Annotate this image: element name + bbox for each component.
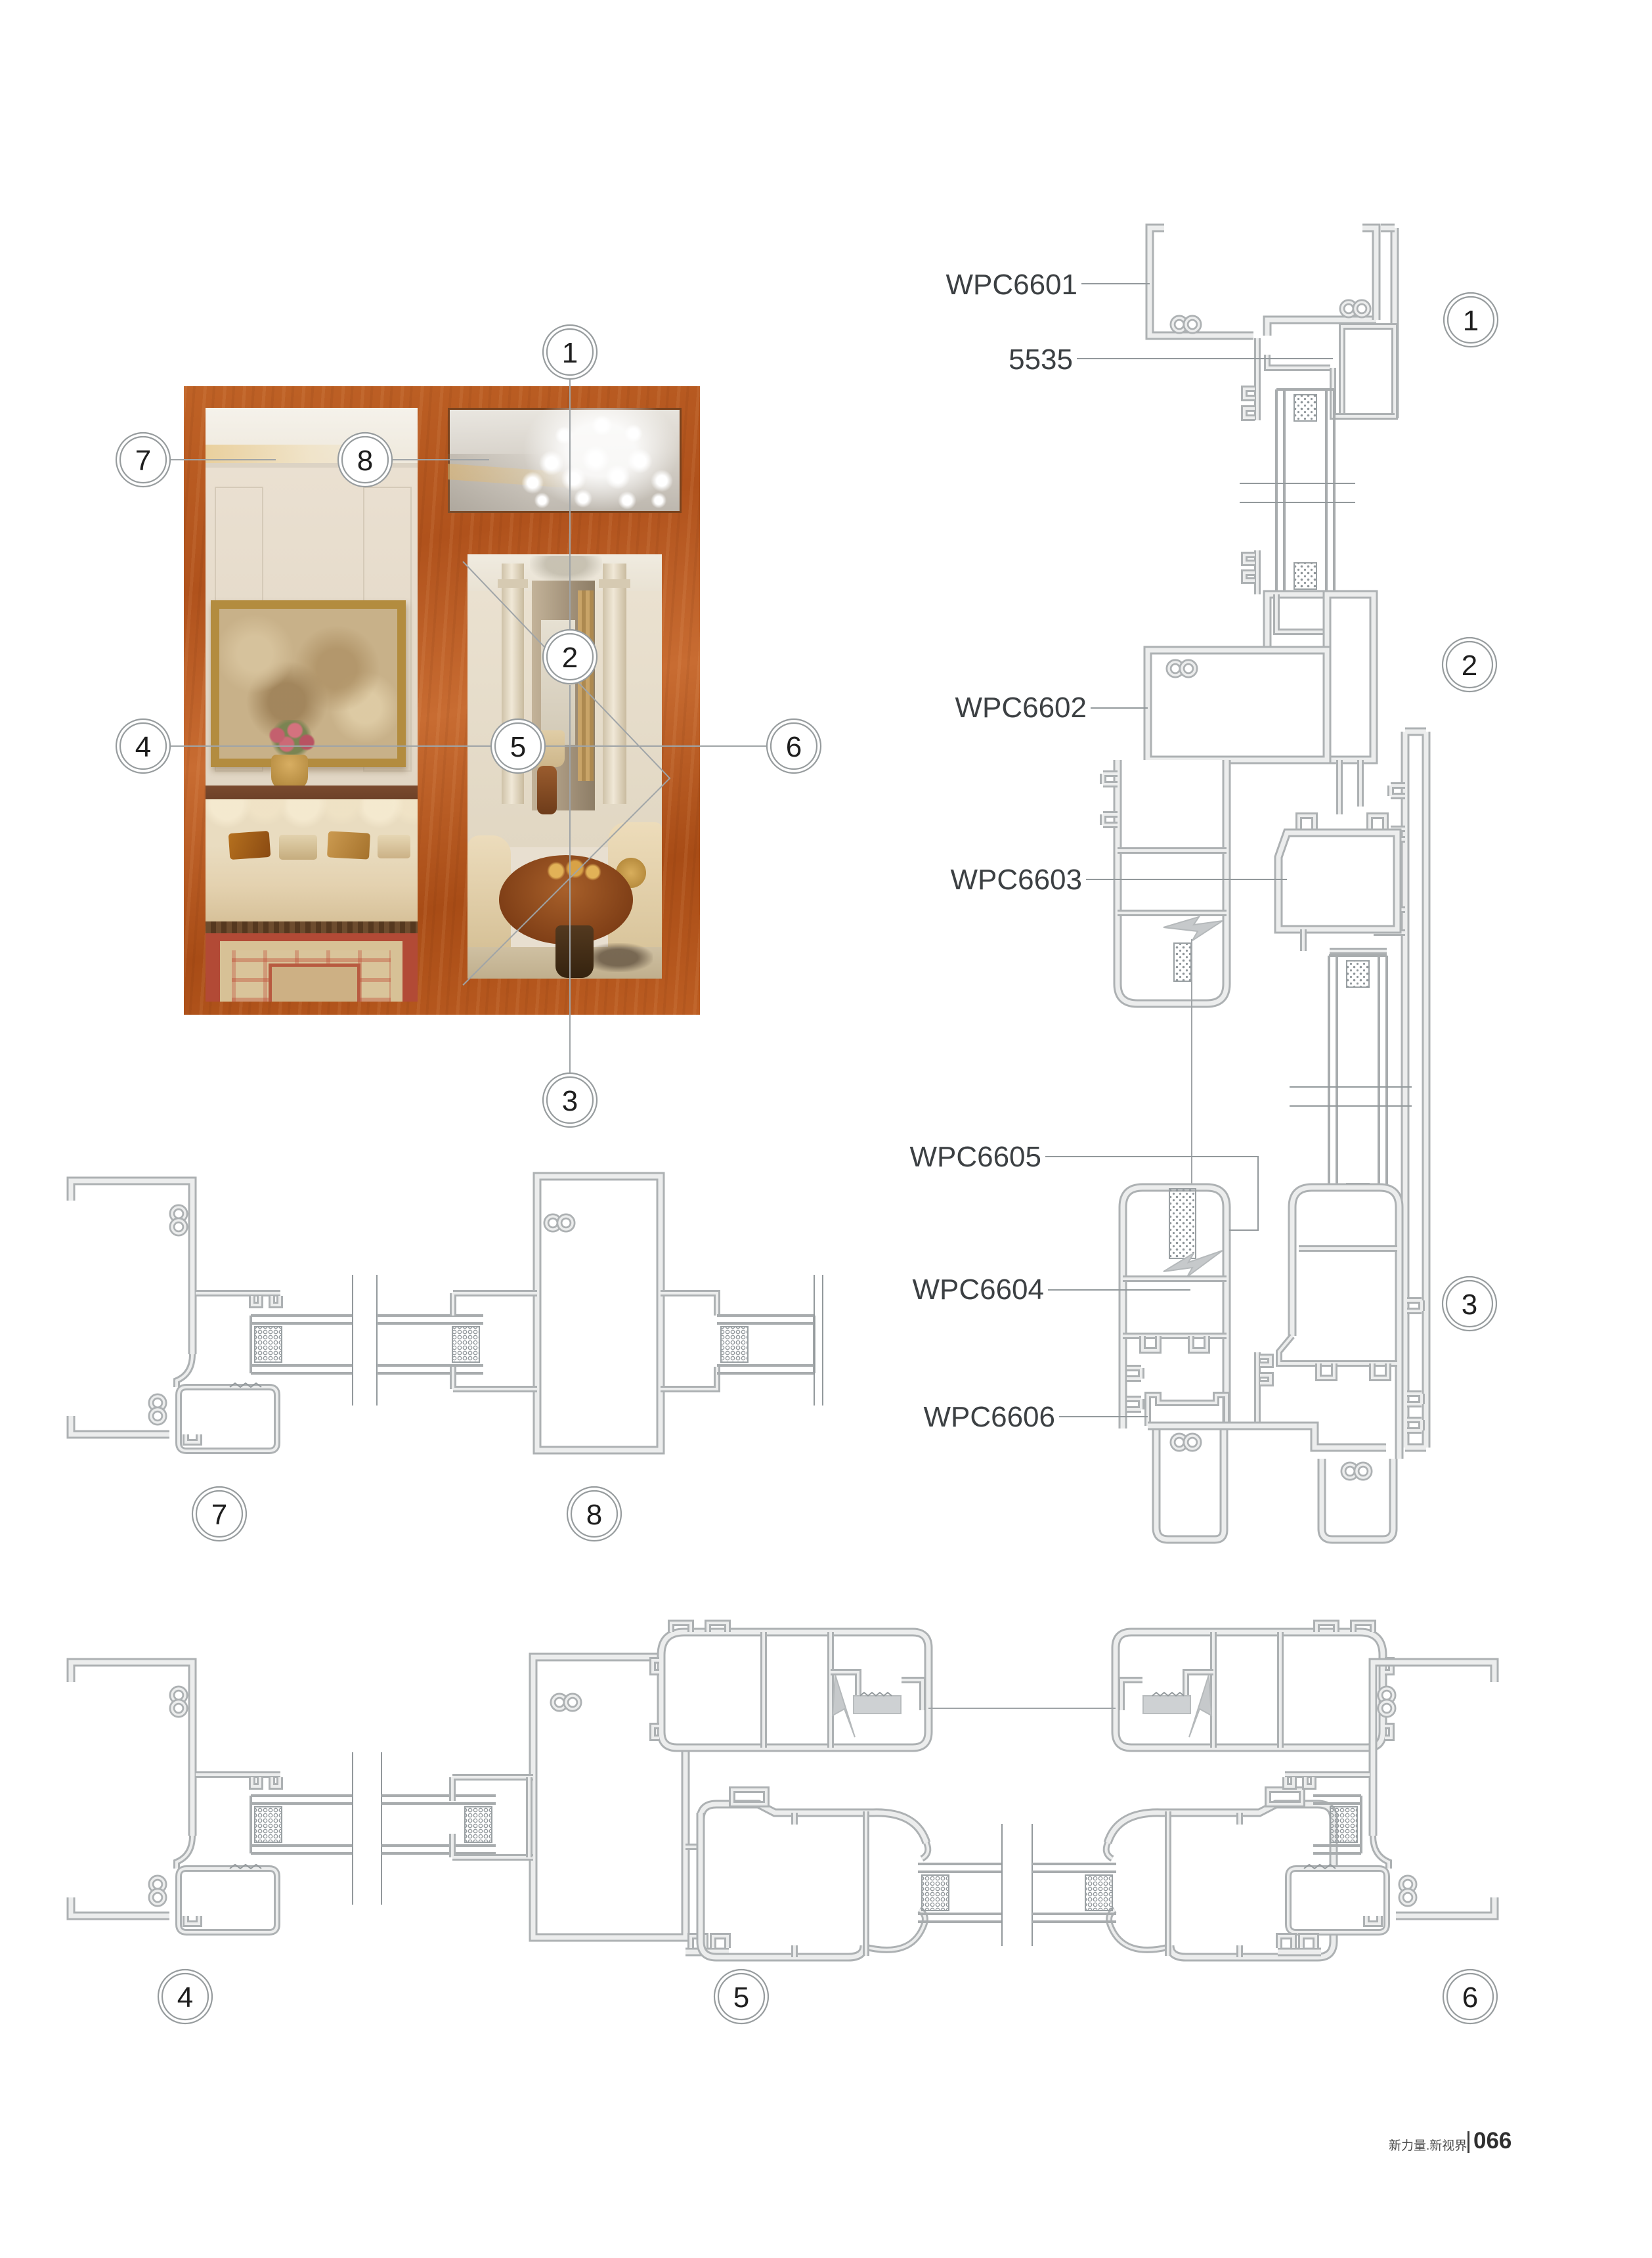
svg-text:5: 5 — [510, 731, 526, 763]
svg-text:4: 4 — [177, 1981, 193, 2014]
svg-text:WPC6601: WPC6601 — [946, 269, 1077, 301]
svg-text:6: 6 — [786, 731, 802, 763]
svg-text:1: 1 — [1463, 305, 1479, 337]
svg-text:5: 5 — [733, 1981, 749, 2014]
svg-text:7: 7 — [211, 1499, 227, 1531]
svg-text:WPC6605: WPC6605 — [909, 1141, 1041, 1173]
svg-text:WPC6602: WPC6602 — [955, 692, 1087, 724]
svg-text:8: 8 — [586, 1499, 602, 1531]
svg-text:WPC6606: WPC6606 — [923, 1401, 1055, 1433]
svg-text:4: 4 — [135, 731, 151, 763]
svg-text:WPC6604: WPC6604 — [912, 1273, 1044, 1306]
svg-text:2: 2 — [562, 642, 578, 674]
svg-text:WPC6603: WPC6603 — [950, 864, 1082, 896]
svg-text:6: 6 — [1462, 1981, 1478, 2014]
svg-text:8: 8 — [357, 445, 373, 477]
svg-text:7: 7 — [135, 445, 151, 477]
svg-text:3: 3 — [1462, 1289, 1477, 1321]
svg-text:5535: 5535 — [1009, 343, 1073, 376]
svg-text:1: 1 — [562, 337, 578, 369]
svg-text:2: 2 — [1462, 650, 1477, 682]
svg-text:3: 3 — [562, 1085, 578, 1117]
